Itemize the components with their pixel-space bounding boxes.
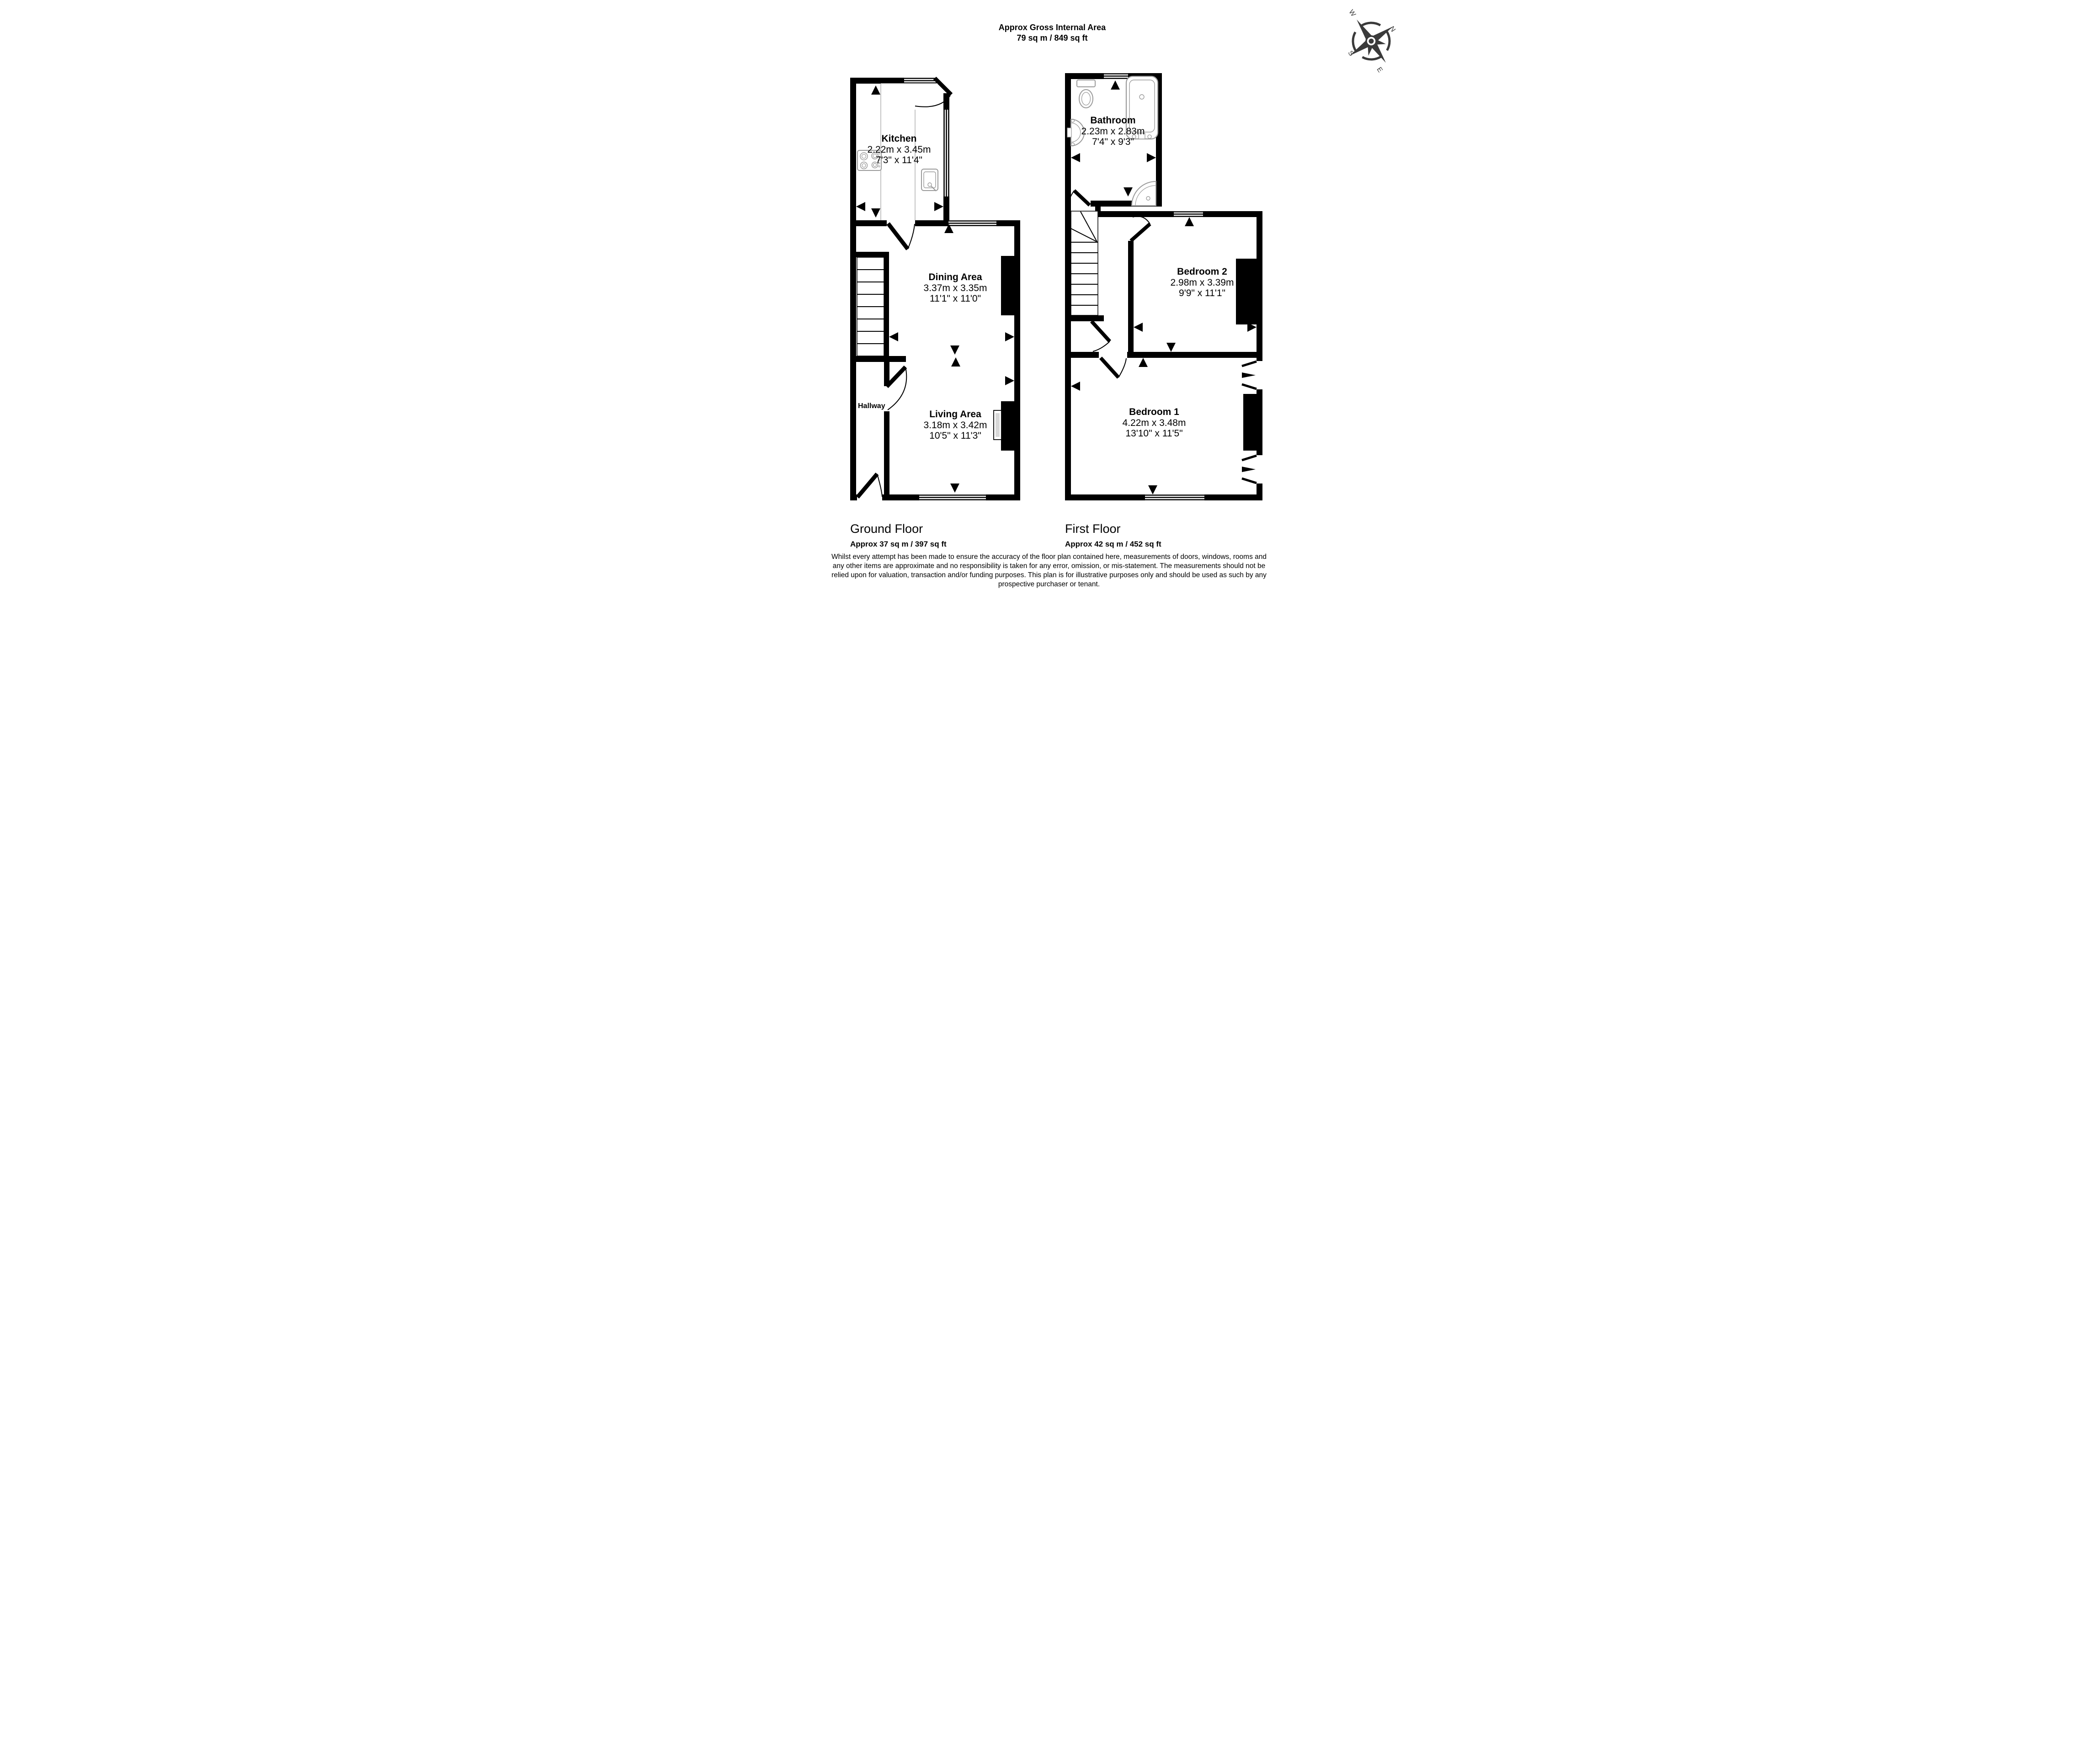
measure-arrow-left — [856, 202, 865, 211]
bedroom1-door — [1101, 358, 1126, 377]
gross-area-value: 79 sq m / 849 sq ft — [1017, 33, 1087, 43]
landing-door — [1092, 321, 1110, 351]
kitchen-side-window — [943, 110, 949, 197]
disclaimer-line-1: Whilst every attempt has been made to en… — [831, 553, 1267, 561]
measure-arrow-down — [950, 345, 959, 355]
kitchen-metric: 2.22m x 3.45m — [868, 144, 931, 155]
header: Approx Gross Internal Area 79 sq m / 849… — [999, 23, 1106, 43]
living-chimney-breast — [1001, 401, 1015, 451]
floorplan-page: Approx Gross Internal Area 79 sq m / 849… — [699, 0, 1399, 588]
measure-arrow-right — [1147, 153, 1156, 162]
ground-floor-plan: Kitchen 2.22m x 3.45m 7'3" x 11'4" Dinin… — [850, 78, 1020, 500]
kitchen-dining-door — [888, 223, 915, 249]
measure-arrow-down — [871, 208, 880, 218]
measure-arrow-right — [1242, 467, 1256, 472]
bedroom2-door — [1131, 216, 1150, 241]
dining-chimney-breast — [1001, 256, 1015, 315]
first-floor-plan: Bathroom 2.23m x 2.83m 7'4" x 9'3" Bedro… — [1065, 73, 1262, 500]
measure-arrow-up — [871, 85, 880, 95]
floor-captions: Ground Floor Approx 37 sq m / 397 sq ft … — [850, 522, 1161, 548]
dining-window — [948, 220, 996, 226]
measure-arrow-up — [951, 357, 960, 367]
bathroom-window — [1104, 73, 1128, 79]
measure-arrow-left — [1134, 323, 1143, 332]
bedroom2-imperial: 9'9" x 11'1" — [1179, 288, 1225, 298]
measure-arrow-down — [1148, 485, 1157, 494]
dining-metric: 3.37m x 3.35m — [924, 283, 987, 293]
compass-e-label: E — [1375, 66, 1384, 74]
floorplan-canvas: Approx Gross Internal Area 79 sq m / 849… — [699, 0, 1399, 588]
compass-n-label: N — [1388, 25, 1397, 33]
gross-area-title: Approx Gross Internal Area — [999, 23, 1106, 32]
disclaimer: Whilst every attempt has been made to en… — [831, 553, 1267, 588]
kitchen-imperial: 7'3" x 11'4" — [876, 155, 922, 165]
bathroom-imperial: 7'4" x 9'3" — [1092, 137, 1134, 147]
living-fireplace-icon — [994, 410, 1001, 440]
measure-arrow-up — [1185, 217, 1194, 226]
measure-arrow-down — [1166, 343, 1176, 352]
bedroom1-window — [1145, 494, 1204, 500]
bedroom1-label: Bedroom 1 — [1129, 407, 1179, 417]
corner-shower-icon — [1132, 181, 1156, 206]
bedroom1-chimney-breast — [1243, 394, 1262, 451]
bedroom1-metric: 4.22m x 3.48m — [1123, 418, 1186, 428]
disclaimer-line-4: prospective purchaser or tenant. — [998, 580, 1100, 588]
first-floor-area: Approx 42 sq m / 452 sq ft — [1065, 540, 1161, 548]
bathroom-label: Bathroom — [1090, 115, 1135, 126]
kitchen-top-window — [904, 78, 937, 84]
front-door — [857, 474, 882, 497]
measure-arrow-down — [950, 484, 959, 493]
living-label: Living Area — [929, 409, 981, 420]
bedroom2-chimney-breast — [1236, 259, 1257, 324]
hallway-living-door — [887, 367, 906, 410]
living-window — [919, 494, 986, 500]
compass-rose-icon: N E S W — [1335, 5, 1399, 77]
measure-arrow-right — [1005, 376, 1014, 385]
disclaimer-line-3: relied upon for valuation, transaction a… — [831, 571, 1267, 579]
ground-floor-stairs — [857, 257, 884, 356]
dining-imperial: 11'1" x 11'0" — [930, 293, 981, 304]
first-floor-stairs — [1071, 211, 1098, 315]
measure-arrow-right — [934, 202, 943, 211]
bedroom2-window — [1174, 211, 1203, 217]
living-metric: 3.18m x 3.42m — [924, 420, 987, 430]
measure-arrow-right — [1005, 332, 1014, 341]
disclaimer-line-2: any other items are approximate and no r… — [833, 562, 1266, 570]
measure-arrow-down — [1124, 187, 1133, 197]
measure-arrow-left — [1071, 382, 1080, 391]
kitchen-label: Kitchen — [881, 133, 916, 144]
measure-arrow-left — [889, 332, 898, 341]
bathroom-metric: 2.23m x 2.83m — [1081, 126, 1145, 137]
bedroom2-metric: 2.98m x 3.39m — [1171, 277, 1234, 288]
bedroom2-label: Bedroom 2 — [1177, 266, 1227, 277]
ground-floor-name: Ground Floor — [850, 522, 923, 536]
living-imperial: 10'5" x 11'3" — [929, 430, 981, 441]
ground-floor-area: Approx 37 sq m / 397 sq ft — [850, 540, 947, 548]
measure-arrow-up — [1111, 80, 1120, 90]
dining-label: Dining Area — [928, 272, 982, 282]
measure-arrow-left — [1071, 153, 1080, 162]
measure-arrow-right — [1242, 372, 1256, 378]
kitchen-sink-icon — [921, 169, 938, 191]
first-floor-name: First Floor — [1065, 522, 1121, 536]
toilet-icon — [1077, 80, 1095, 108]
hallway-label: Hallway — [858, 402, 885, 410]
compass-s-label: S — [1347, 49, 1356, 58]
bedroom1-imperial: 13'10" x 11'5" — [1125, 428, 1182, 439]
compass-w-label: W — [1347, 8, 1357, 18]
measure-arrow-up — [1139, 358, 1148, 367]
